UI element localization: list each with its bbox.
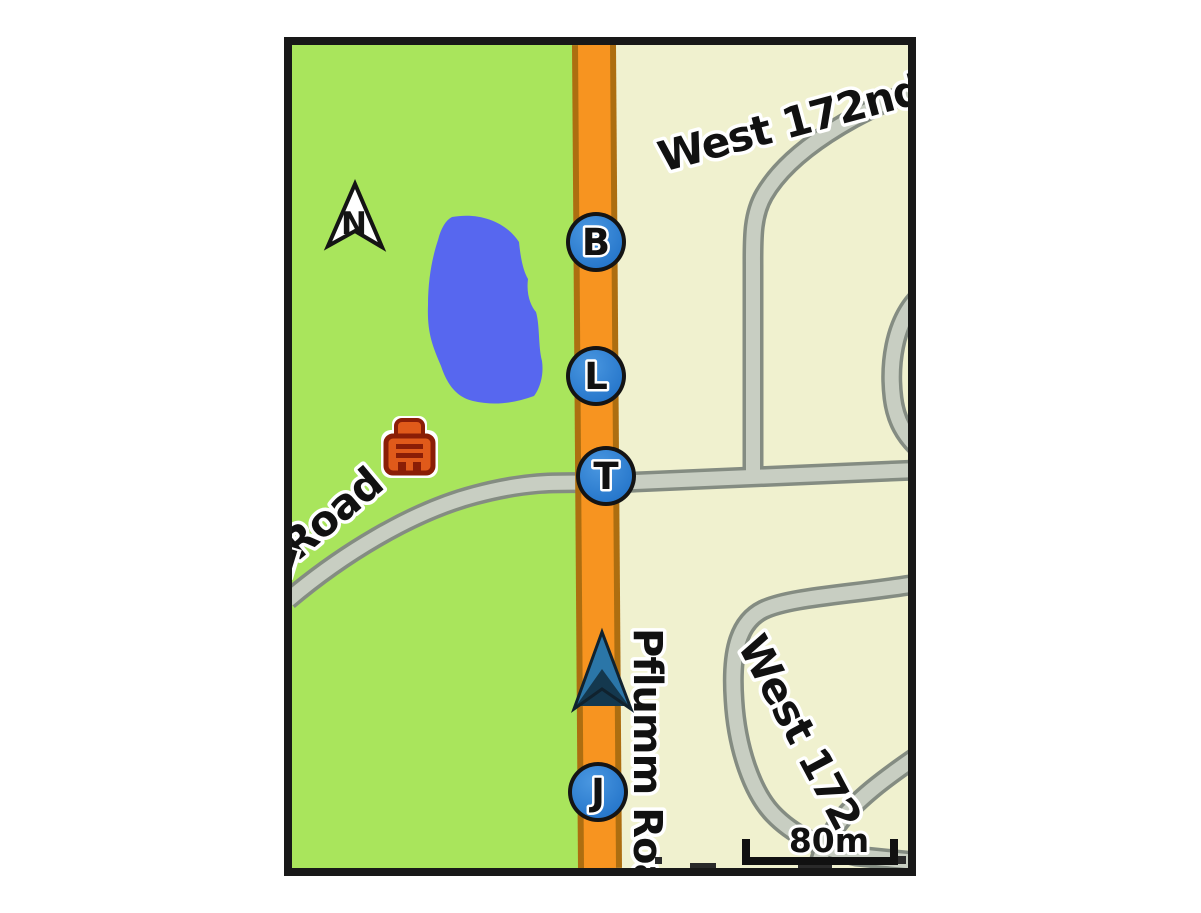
waypoint-letter: L [584, 355, 608, 398]
waypoint-letter: J [588, 771, 605, 814]
compass-letter: N [341, 206, 367, 242]
screen: N West 172nd Road Pflumm Road West 172 [0, 0, 1201, 913]
waypoint-marker-B[interactable]: B [566, 212, 626, 272]
map-frame: N West 172nd Road Pflumm Road West 172 [284, 37, 916, 876]
clipped-label-fragment-left [292, 548, 295, 578]
waypoint-marker-L[interactable]: L [566, 346, 626, 406]
waypoint-marker-J[interactable]: J [568, 762, 628, 822]
map-canvas[interactable]: N West 172nd Road Pflumm Road West 172 [292, 45, 908, 868]
label-pflumm-road: Pflumm Road [624, 628, 670, 868]
scale-bar-label: 80m [789, 821, 869, 860]
waypoint-letter: B [582, 221, 610, 264]
waypoint-marker-T[interactable]: T [576, 446, 636, 506]
waypoint-letter: T [593, 455, 619, 498]
